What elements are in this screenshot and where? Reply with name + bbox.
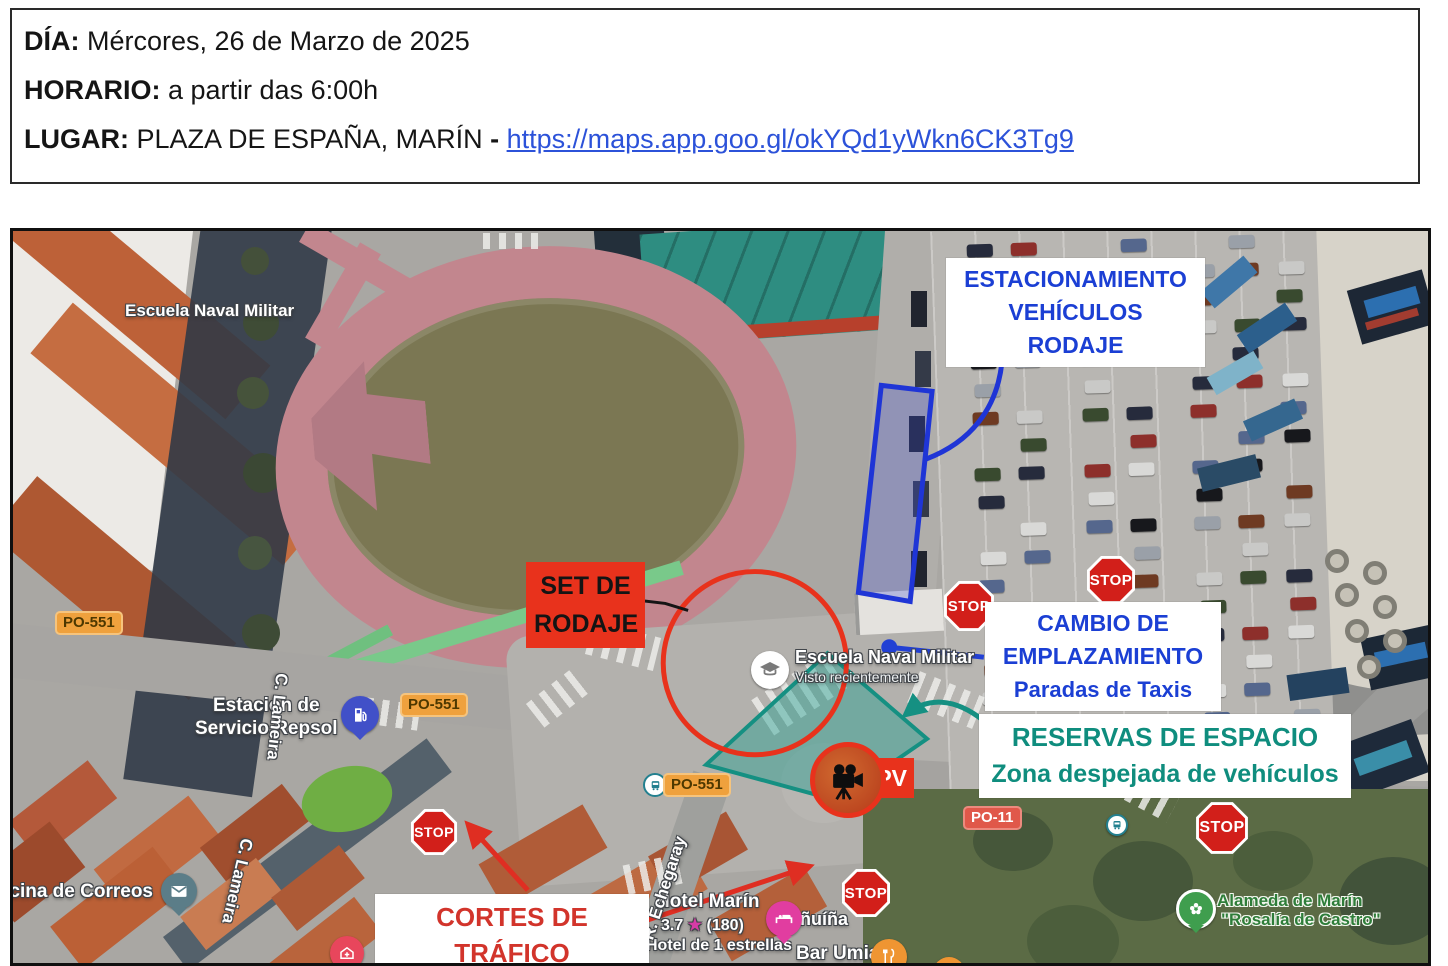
- event-date-line: DÍA: Mércores, 26 de Marzo de 2025: [24, 22, 1404, 60]
- horario-value: a partir das 6:00h: [161, 75, 379, 105]
- road-badge-po551-bus: PO-551: [643, 773, 731, 797]
- star-icon: ★: [688, 917, 702, 934]
- map-image: Escuela Naval Militar Escuela Naval Mili…: [10, 228, 1431, 966]
- callout-cambio-emplazamiento: CAMBIO DE EMPLAZAMIENTO Paradas de Taxis: [985, 602, 1221, 711]
- annotation-overlay: [13, 231, 1428, 966]
- road-badge-po551: PO-551: [55, 611, 123, 635]
- callout-reservas-espacio: RESERVAS DE ESPACIO Zona despejada de ve…: [979, 714, 1351, 798]
- traffic-cut-arrow-left: [468, 824, 528, 890]
- road-badge-po11: PO-11: [963, 806, 1022, 830]
- post-office-icon: [161, 873, 197, 909]
- gas-station-icon: [341, 696, 379, 734]
- road-badge-po551: PO-551: [400, 693, 468, 717]
- lugar-label: LUGAR:: [24, 124, 129, 154]
- parking-zone-rect: [858, 385, 932, 601]
- park-icon: [1176, 889, 1216, 929]
- hotel-rating-row: 3.7 ★ (180): [661, 915, 744, 935]
- escuela-naval-label-top: Escuela Naval Militar: [125, 301, 294, 321]
- hotel-desc-label: Hotel de 1 estrellas: [646, 937, 792, 955]
- dia-label: DÍA:: [24, 26, 80, 56]
- hotel-reviews: (180): [707, 917, 744, 934]
- event-place-line: LUGAR: PLAZA DE ESPAÑA, MARÍN - https://…: [24, 120, 1404, 158]
- bus-stop-icon: [1106, 814, 1128, 836]
- callout-cortes-trafico: CORTES DE TRÁFICO INTERMITENTES: [375, 894, 649, 966]
- hotel-icon: [766, 901, 802, 937]
- escuela-naval-label-center: Escuela Naval Militar: [795, 647, 974, 668]
- dia-value: Mércores, 26 de Marzo de 2025: [80, 26, 470, 56]
- correos-label: Oficina de Correos: [10, 881, 153, 903]
- event-info-box: DÍA: Mércores, 26 de Marzo de 2025 HORAR…: [10, 8, 1420, 184]
- lugar-dash: -: [490, 124, 507, 154]
- alameda-label: Alameda de Marín "Rosalía de Castro": [1217, 891, 1381, 929]
- bar-umia-label: Bar Umia: [796, 943, 879, 965]
- camera-icon: [827, 759, 869, 801]
- flyer-page: DÍA: Mércores, 26 de Marzo de 2025 HORAR…: [0, 0, 1448, 966]
- lugar-value: PLAZA DE ESPAÑA, MARÍN: [129, 124, 490, 154]
- reserved-arrow: [905, 702, 984, 721]
- clinic-icon: [330, 936, 364, 966]
- event-time-line: HORARIO: a partir das 6:00h: [24, 71, 1404, 109]
- callout-estacionamiento: ESTACIONAMIENTO VEHÍCULOS RODAJE: [946, 258, 1205, 367]
- map-link[interactable]: https://maps.app.goo.gl/okYQd1yWkn6CK3Tg…: [507, 124, 1074, 154]
- horario-label: HORARIO:: [24, 75, 161, 105]
- callout-set-de-rodaje: SET DE RODAJE: [526, 562, 645, 648]
- school-icon: [751, 651, 789, 689]
- nuina-label: ñuíña: [800, 909, 848, 930]
- parking-zone-connector: [926, 363, 1002, 459]
- escuela-naval-sublabel: Visto recientemente: [795, 669, 918, 685]
- camera-position-marker: [810, 742, 886, 818]
